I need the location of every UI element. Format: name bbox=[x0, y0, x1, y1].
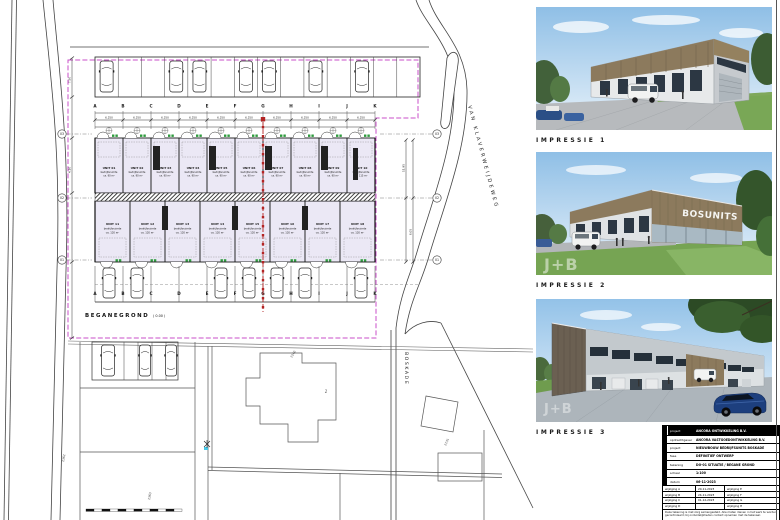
label: bedrijfsruimte bbox=[244, 226, 262, 230]
unit-label: UNIT 01 bbox=[103, 166, 116, 170]
label: ca. 120 m² bbox=[316, 230, 330, 234]
stair-core bbox=[232, 206, 238, 230]
car-symbol bbox=[102, 345, 115, 376]
label: bedrijfsruimte bbox=[279, 226, 297, 230]
unit-label: UNIT 12 bbox=[141, 222, 154, 226]
label: bedrijfsruimte bbox=[325, 171, 342, 174]
grid-letter: F bbox=[234, 291, 237, 296]
impression-2-label: IMPRESSIE 2 bbox=[536, 282, 772, 289]
unit-label: UNIT 06 bbox=[243, 166, 256, 170]
titleblock-row-icon bbox=[663, 426, 668, 435]
grid-letter: H bbox=[289, 291, 293, 296]
grid-letter: B bbox=[121, 291, 124, 296]
label: ca. 120 m² bbox=[106, 230, 120, 234]
floor-label: BEGANEGROND bbox=[85, 313, 149, 319]
car-symbol bbox=[100, 61, 113, 92]
grid-number: 02 bbox=[435, 196, 439, 200]
dimension-text: 6.250 bbox=[245, 115, 253, 119]
label: bedrijfsruimte bbox=[314, 226, 332, 230]
label: ca. 90 m² bbox=[159, 175, 170, 178]
impression-1-label: IMPRESSIE 1 bbox=[536, 137, 772, 144]
parcel-number: 2131 bbox=[443, 438, 450, 447]
car-symbol bbox=[103, 268, 115, 298]
van bbox=[694, 369, 716, 382]
grid-letter: C bbox=[149, 104, 152, 109]
titleblock-row-value: 06-11-2023 bbox=[696, 480, 716, 484]
car-symbol bbox=[193, 61, 206, 92]
grid-letter: A bbox=[93, 291, 97, 296]
watermark: J+B bbox=[543, 255, 579, 274]
grid-letter: J bbox=[345, 104, 348, 109]
survey-marker bbox=[204, 447, 208, 450]
impression-2-render: BOSUNITS J+B bbox=[536, 152, 772, 275]
label: bedrijfsruimte bbox=[213, 171, 230, 174]
car-symbol bbox=[166, 345, 177, 376]
car-symbol bbox=[239, 61, 252, 92]
floor-level: ( 0.00 ) bbox=[153, 314, 166, 318]
unit-label: UNIT 03 bbox=[159, 166, 172, 170]
dimension-text: 6.250 bbox=[105, 115, 113, 119]
titleblock-row-value: NIEUWBOUW BEDRIJFSUNITS BOSKADE bbox=[696, 446, 764, 450]
revision-label: wijziging B bbox=[663, 492, 695, 497]
titleblock-row-value: DO-01 SITUATIE / BEGANE GROND bbox=[696, 463, 755, 467]
grid-letter: D bbox=[177, 291, 181, 296]
grid-number: 02 bbox=[60, 196, 64, 200]
revision-label: wijziging E bbox=[724, 486, 779, 491]
unit-label: UNIT 09 bbox=[327, 166, 340, 170]
grid-letter: I bbox=[318, 291, 320, 296]
unit-label: UNIT 18 bbox=[351, 222, 364, 226]
titleblock-row-value: 1:100 bbox=[696, 471, 706, 475]
revision-label: wijziging G bbox=[724, 498, 779, 503]
label: bedrijfsruimte bbox=[241, 171, 258, 174]
dimension-text: 6.250 bbox=[189, 115, 197, 119]
revision-label: wijziging H bbox=[724, 504, 779, 509]
grid-letter: J bbox=[345, 291, 348, 296]
sheet-border-line bbox=[776, 0, 777, 520]
label: bedrijfsruimte bbox=[349, 226, 367, 230]
label: bedrijfsruimte bbox=[139, 226, 157, 230]
dimension-text: 4.10 bbox=[68, 167, 72, 173]
grid-number: 01 bbox=[435, 258, 439, 262]
grid-number: 03 bbox=[60, 132, 64, 136]
impression-1: IMPRESSIE 1 bbox=[536, 7, 772, 144]
dimension-text: 6.05 bbox=[409, 229, 413, 235]
revision-label: wijziging F bbox=[724, 492, 779, 497]
label: bedrijfsruimte bbox=[297, 171, 314, 174]
label: ca. 90 m² bbox=[215, 175, 226, 178]
unit-label: UNIT 05 bbox=[215, 166, 228, 170]
car-symbol bbox=[271, 268, 283, 298]
impression-3: J+B IMPRESSIE 3 bbox=[536, 299, 772, 436]
street-label-right: VAN KLAVERWEIJDEWEG bbox=[466, 105, 499, 210]
grid-letter: F bbox=[234, 104, 237, 109]
parcel-number: 2363 bbox=[147, 492, 152, 500]
parking-bottom bbox=[95, 266, 420, 302]
dimension-text: 7.50 bbox=[68, 77, 72, 83]
label: bedrijfsruimte bbox=[129, 171, 146, 174]
stair-core bbox=[302, 206, 308, 230]
titleblock-row: datum06-11-2023 bbox=[663, 478, 779, 486]
car-symbol bbox=[140, 345, 151, 376]
revision-label: wijziging D bbox=[663, 504, 695, 509]
revision-date: 24-11-2023 bbox=[695, 492, 724, 497]
parking-top bbox=[95, 57, 420, 97]
unit-label: UNIT 16 bbox=[281, 222, 294, 226]
revision-date: 01-12-2023 bbox=[695, 498, 724, 503]
unit-label: UNIT 17 bbox=[316, 222, 329, 226]
revision-label: wijziging C bbox=[663, 498, 695, 503]
titleblock-row: schaal1:100 bbox=[663, 470, 779, 478]
car-symbol bbox=[263, 61, 276, 92]
parking-left bbox=[92, 342, 178, 380]
tree bbox=[550, 76, 570, 102]
titleblock-row-icon bbox=[663, 444, 668, 451]
label: ca. 115 m² bbox=[355, 175, 368, 178]
label: bedrijfsruimte bbox=[209, 226, 227, 230]
dimension-text: 11.95 bbox=[402, 164, 406, 172]
label: ca. 120 m² bbox=[141, 230, 155, 234]
titleblock-note: Deze tekening is met zorg samengesteld. … bbox=[663, 510, 779, 520]
label: bedrijfsruimte bbox=[104, 226, 122, 230]
titleblock-row-label: tekening bbox=[670, 463, 696, 467]
label: bedrijfsruimte bbox=[269, 171, 286, 174]
titleblock-row-value: ANCORA VASTGOEDONTWIKKELING B.V. bbox=[696, 438, 765, 442]
label: bedrijfsruimte bbox=[101, 171, 118, 174]
impression-2: BOSUNITS J+B IMPRESSIE 2 bbox=[536, 152, 772, 289]
titleblock-row-label: project bbox=[670, 446, 696, 450]
label: ca. 90 m² bbox=[131, 175, 142, 178]
grid-letter: C bbox=[149, 291, 152, 296]
titleblock-row-icon bbox=[663, 461, 668, 468]
grid-letter: E bbox=[206, 104, 209, 109]
unit-label: UNIT 13 bbox=[176, 222, 189, 226]
grid-letter: A bbox=[93, 104, 97, 109]
label: ca. 90 m² bbox=[299, 175, 310, 178]
titleblock-row-value: DEFINITIEF ONTWERP bbox=[696, 454, 734, 458]
titleblock-row-label: datum bbox=[670, 480, 696, 484]
car-symbol bbox=[215, 268, 227, 298]
titleblock-row-icon bbox=[663, 453, 668, 460]
titleblock-row-icon bbox=[663, 478, 668, 485]
grid-letter: H bbox=[289, 104, 293, 109]
watermark: J+B bbox=[543, 402, 573, 417]
unit-label: UNIT 02 bbox=[131, 166, 144, 170]
titleblock-row-label: fase bbox=[670, 454, 696, 458]
label: ca. 90 m² bbox=[243, 175, 254, 178]
label: ca. 120 m² bbox=[211, 230, 225, 234]
car-symbol bbox=[355, 61, 368, 92]
star-marker bbox=[204, 440, 210, 448]
grid-letter: K bbox=[373, 104, 377, 109]
label: ca. 120 m² bbox=[281, 230, 295, 234]
unit-label: UNIT 10 bbox=[355, 166, 368, 170]
grid-letter: G bbox=[261, 104, 265, 109]
titleblock-row-value: ANCORA ONTWIKKELING B.V. bbox=[696, 429, 747, 433]
label: ca. 120 m² bbox=[351, 230, 365, 234]
unit-label: UNIT 15 bbox=[246, 222, 259, 226]
revision-date: 20-11-2023 bbox=[695, 486, 724, 491]
unit-label: UNIT 04 bbox=[187, 166, 200, 170]
dimension-text: 6.250 bbox=[357, 115, 365, 119]
car-symbol bbox=[243, 268, 255, 298]
titleblock-row-label: opdrachtgever bbox=[670, 438, 696, 442]
unit-label: UNIT 14 bbox=[211, 222, 224, 226]
dimension-text: 6.250 bbox=[217, 115, 225, 119]
dimension-text: 6.250 bbox=[161, 115, 169, 119]
revision-label: wijziging A bbox=[663, 486, 695, 491]
parcel-number: 2240 bbox=[289, 350, 296, 359]
label: ca. 120 m² bbox=[246, 230, 260, 234]
grid-number: 01 bbox=[60, 258, 64, 262]
label: bedrijfsruimte bbox=[185, 171, 202, 174]
unit-label: UNIT 11 bbox=[106, 222, 119, 226]
car-symbol bbox=[299, 268, 311, 298]
label: ca. 90 m² bbox=[271, 175, 282, 178]
revision-date bbox=[695, 504, 724, 509]
car-symbol bbox=[355, 268, 367, 298]
car-symbol bbox=[170, 61, 183, 92]
title-block: projectANCORA ONTWIKKELING B.V.opdrachtg… bbox=[662, 425, 780, 520]
titleblock-row-label: project bbox=[670, 429, 696, 433]
grid-letter: E bbox=[206, 291, 209, 296]
car-symbol bbox=[309, 61, 322, 92]
label: ca. 90 m² bbox=[187, 175, 198, 178]
dimension-text: 6.250 bbox=[273, 115, 281, 119]
label: bedrijfsruimte bbox=[174, 226, 192, 230]
drawing-sheet: VAN KLAVERWEIJDEWEG BOSKADE BEGANEGROND … bbox=[0, 0, 780, 520]
parcel-number: 2362 bbox=[61, 454, 66, 462]
titleblock-row: faseDEFINITIEF ONTWERP bbox=[663, 453, 779, 461]
site-plan: VAN KLAVERWEIJDEWEG BOSKADE BEGANEGROND … bbox=[0, 0, 536, 520]
existing-building-outline bbox=[246, 353, 336, 442]
building-number: 1 bbox=[325, 389, 328, 394]
building-block bbox=[95, 138, 375, 262]
blue-car bbox=[714, 393, 766, 417]
impression-1-render bbox=[536, 7, 772, 130]
label: bedrijfsruimte bbox=[353, 171, 370, 174]
unit-label: UNIT 07 bbox=[271, 166, 284, 170]
label: bedrijfsruimte bbox=[157, 171, 174, 174]
street-label-bottom: BOSKADE bbox=[403, 352, 409, 385]
grid-letter: I bbox=[318, 104, 320, 109]
stair-core bbox=[162, 206, 168, 230]
grid-letter: B bbox=[121, 104, 124, 109]
titleblock-row: projectNIEUWBOUW BEDRIJFSUNITS BOSKADE bbox=[663, 444, 779, 452]
unit-label: UNIT 08 bbox=[299, 166, 312, 170]
dimension-text: 6.250 bbox=[133, 115, 141, 119]
grid-letter: K bbox=[373, 291, 377, 296]
label: ca. 90 m² bbox=[103, 175, 114, 178]
scale-bar bbox=[86, 509, 182, 511]
dimension-text: 6.250 bbox=[329, 115, 337, 119]
grid-letter: D bbox=[177, 104, 181, 109]
titleblock-row: projectANCORA ONTWIKKELING B.V. bbox=[663, 426, 779, 436]
titleblock-row: tekeningDO-01 SITUATIE / BEGANE GROND bbox=[663, 461, 779, 469]
label: ca. 90 m² bbox=[327, 175, 338, 178]
parked-car bbox=[536, 239, 552, 247]
titleblock-row-icon bbox=[663, 470, 668, 477]
titleblock-row-icon bbox=[663, 436, 668, 443]
titleblock-row-label: schaal bbox=[670, 471, 696, 475]
titleblock-row: opdrachtgeverANCORA VASTGOEDONTWIKKELING… bbox=[663, 436, 779, 444]
dimension-text: 6.250 bbox=[301, 115, 309, 119]
car-symbol bbox=[131, 268, 143, 298]
impression-3-render: J+B bbox=[536, 299, 772, 422]
label: ca. 120 m² bbox=[176, 230, 190, 234]
grid-number: 03 bbox=[435, 132, 439, 136]
